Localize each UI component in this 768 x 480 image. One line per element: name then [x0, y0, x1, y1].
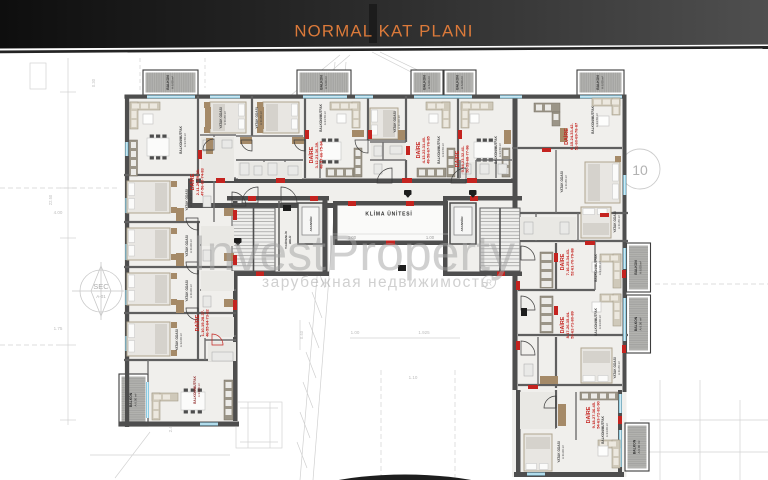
svg-text:BALKON: BALKON [320, 75, 324, 90]
svg-text:A:6.00 m²: A:6.00 m² [324, 76, 328, 89]
svg-text:зарубежная недвижимость: зарубежная недвижимость [262, 274, 490, 291]
svg-text:A:6.00 m²: A:6.00 m² [460, 76, 464, 89]
svg-text:A:6.00 m²: A:6.00 m² [427, 76, 431, 89]
svg-text:InvestProperty: InvestProperty [193, 225, 515, 281]
svg-text:54-63-72-81-90: 54-63-72-81-90 [595, 400, 600, 428]
svg-text:A:11.00 m²: A:11.00 m² [561, 445, 565, 459]
svg-text:BALKON: BALKON [423, 75, 427, 90]
svg-text:A:6.00 m²: A:6.00 m² [134, 393, 138, 406]
svg-text:10: 10 [632, 162, 648, 178]
svg-text:A:11.00 m²: A:11.00 m² [189, 193, 193, 207]
svg-text:A:11.80 m²: A:11.80 m² [617, 361, 621, 375]
svg-text:A:23.00 m²: A:23.00 m² [598, 315, 602, 329]
svg-text:A:11.80 m²: A:11.80 m² [617, 215, 621, 229]
svg-text:BALKON: BALKON [634, 260, 638, 275]
svg-text:50-59-68-77-86: 50-59-68-77-86 [464, 144, 469, 172]
svg-text:48-57-66-75-84: 48-57-66-75-84 [318, 140, 323, 168]
svg-text:BALKON: BALKON [633, 439, 637, 454]
svg-text:A:6.00 m²: A:6.00 m² [639, 261, 643, 274]
svg-text:A:12.00 m²: A:12.00 m² [179, 333, 183, 347]
svg-text:52-61-70-79-88: 52-61-70-79-88 [569, 247, 574, 275]
svg-text:A:33.50 m²: A:33.50 m² [183, 133, 187, 147]
svg-text:A:23.00 m²: A:23.00 m² [598, 261, 602, 275]
svg-text:BALKON: BALKON [456, 75, 460, 90]
svg-text:BALKON: BALKON [634, 316, 638, 331]
svg-text:A:33.50 m²: A:33.50 m² [197, 383, 201, 397]
svg-text:BALKON: BALKON [166, 75, 170, 90]
svg-text:NORMAL KAT PLANI: NORMAL KAT PLANI [294, 22, 473, 41]
svg-text:KLİMA ÜNİTESİ: KLİMA ÜNİTESİ [365, 211, 412, 218]
svg-text:0.40: 0.40 [299, 330, 304, 339]
svg-text:A:11.00 m²: A:11.00 m² [189, 284, 193, 298]
svg-text:A:23.50 m²: A:23.50 m² [498, 143, 502, 157]
svg-text:A:6.00 m²: A:6.00 m² [601, 76, 605, 89]
svg-text:51-60-69-78-87: 51-60-69-78-87 [573, 122, 578, 150]
svg-text:A:11.00 m²: A:11.00 m² [397, 115, 401, 129]
svg-text:A:6.00 m²: A:6.00 m² [637, 440, 641, 453]
svg-text:BALKON: BALKON [596, 75, 600, 90]
svg-text:BALKON: BALKON [129, 392, 133, 407]
svg-text:49-58-67-76-85: 49-58-67-76-85 [425, 135, 430, 163]
svg-text:4.00: 4.00 [54, 210, 63, 215]
svg-text:SEC: SEC [93, 282, 109, 291]
svg-text:53-62-71-80-89: 53-62-71-80-89 [569, 310, 574, 338]
svg-text:A:23.00 m²: A:23.00 m² [605, 423, 609, 437]
svg-text:1.925: 1.925 [418, 330, 430, 335]
svg-text:22.50: 22.50 [48, 194, 53, 205]
svg-text:1.00: 1.00 [351, 330, 360, 335]
svg-text:1.10: 1.10 [409, 375, 418, 380]
svg-text:A:11.80 m²: A:11.80 m² [223, 111, 227, 125]
svg-text:A-01: A-01 [96, 294, 106, 299]
svg-text:A:23.50 m²: A:23.50 m² [595, 113, 599, 127]
svg-text:A:23.50 m²: A:23.50 m² [441, 143, 445, 157]
svg-text:47-56-65-74-83: 47-56-65-74-83 [199, 167, 204, 195]
svg-text:A:6.00 m²: A:6.00 m² [639, 317, 643, 330]
svg-text:A:23.50 m²: A:23.50 m² [323, 111, 327, 125]
svg-text:1.75: 1.75 [54, 326, 63, 331]
svg-text:A:6.00 m²: A:6.00 m² [171, 76, 175, 89]
svg-text:A:11.80 m²: A:11.80 m² [259, 111, 263, 125]
svg-text:46-55-64-73-82: 46-55-64-73-82 [204, 308, 209, 336]
svg-text:0.30: 0.30 [91, 78, 96, 87]
svg-text:A:11.80 m²: A:11.80 m² [564, 175, 568, 189]
